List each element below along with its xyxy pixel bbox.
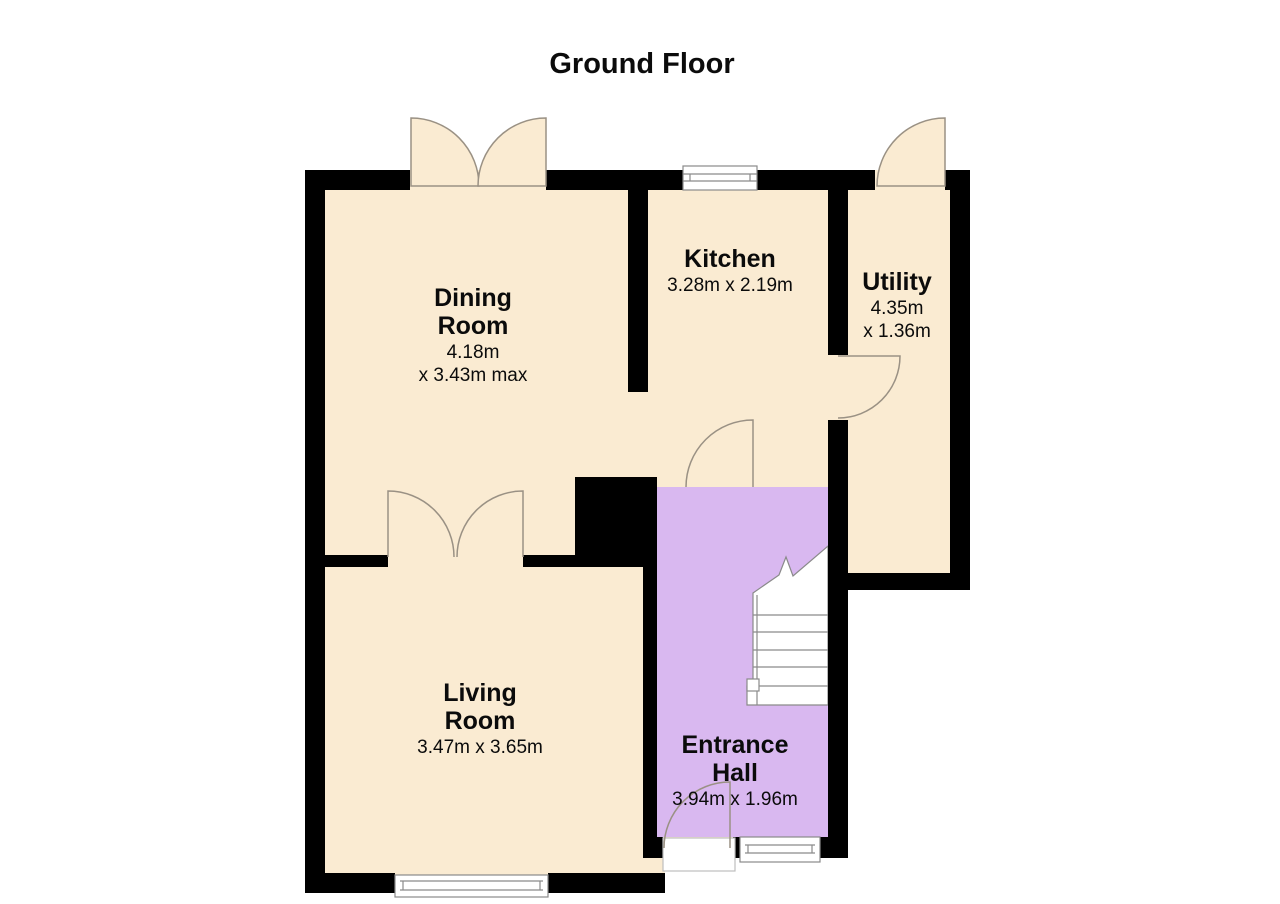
wall-living-bottom-left xyxy=(305,873,395,893)
room-label-hall: Entrance Hall 3.94m x 1.96m xyxy=(672,731,798,812)
room-label-dining: Dining Room 4.18m x 3.43m max xyxy=(419,284,528,388)
dining-french-door-right xyxy=(478,118,546,186)
living-room-dimensions: 3.47m x 3.65m xyxy=(417,737,543,760)
wall-hall-right xyxy=(828,420,848,858)
utility-exterior-door xyxy=(877,118,945,186)
dining-room-name: Dining Room xyxy=(419,284,528,340)
room-label-utility: Utility 4.35m x 1.36m xyxy=(862,268,931,344)
wall-kitchen-utility-divider xyxy=(828,170,848,355)
wall-utility-bottom xyxy=(828,573,970,590)
wall-hall-left xyxy=(643,565,657,858)
wall-top-mid xyxy=(546,170,683,190)
wall-hall-bottom-left xyxy=(643,837,663,858)
kitchen-name: Kitchen xyxy=(667,245,793,273)
wall-dining-kitchen-divider xyxy=(628,190,648,392)
entrance-hall-dimensions: 3.94m x 1.96m xyxy=(672,789,798,812)
kitchen-window xyxy=(683,166,757,190)
living-room-name: Living Room xyxy=(417,679,543,735)
room-label-kitchen: Kitchen 3.28m x 2.19m xyxy=(667,245,793,298)
hall-window xyxy=(740,837,820,862)
wall-dining-living-left xyxy=(325,555,388,567)
wall-center-block xyxy=(575,477,657,567)
utility-dimensions: 4.35m x 1.36m xyxy=(862,298,931,344)
wall-left xyxy=(305,170,325,893)
wall-utility-right xyxy=(950,170,970,590)
entrance-hall-name: Entrance Hall xyxy=(672,731,798,787)
utility-name: Utility xyxy=(862,268,931,296)
living-room-window xyxy=(395,875,548,897)
wall-top-right xyxy=(757,170,875,190)
floor-plan-page: Ground Floor xyxy=(0,0,1280,904)
dining-room-dimensions: 4.18m x 3.43m max xyxy=(419,342,528,388)
room-label-living: Living Room 3.47m x 3.65m xyxy=(417,679,543,760)
front-door-threshold xyxy=(663,838,735,871)
dining-french-door-left xyxy=(411,118,479,186)
kitchen-dimensions: 3.28m x 2.19m xyxy=(667,275,793,298)
stair-newel-post xyxy=(747,679,759,691)
wall-living-bottom-right xyxy=(548,873,665,893)
floor-plan-drawing xyxy=(0,0,1280,904)
